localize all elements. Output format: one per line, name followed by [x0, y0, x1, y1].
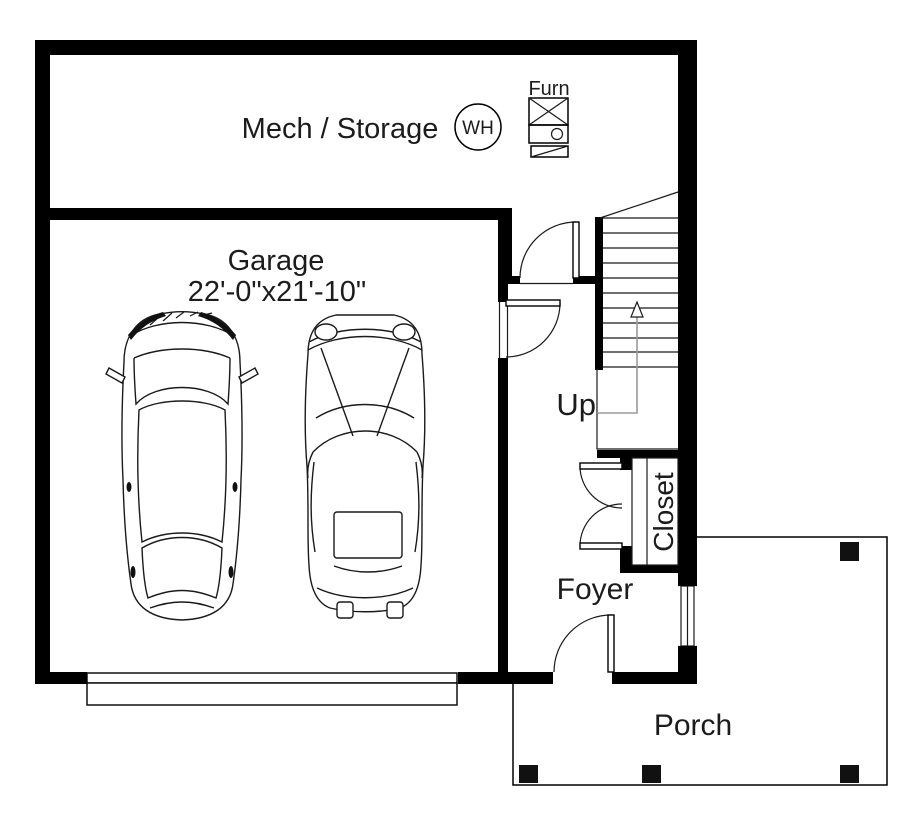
car-right-exhaust	[337, 602, 353, 618]
hall-top-door-swing	[520, 222, 576, 278]
garage-hall-door-swing	[506, 303, 560, 357]
car-left-handle	[127, 482, 132, 492]
car-right-body	[305, 315, 425, 612]
room-label-foyer: Foyer	[557, 573, 634, 606]
car-right-headlight	[315, 324, 337, 340]
car-left	[106, 312, 258, 620]
hall-wall-stub-left	[498, 276, 520, 284]
exterior-wall-top	[35, 40, 697, 55]
porch-post	[840, 542, 859, 561]
room-label-closet: Closet	[648, 472, 679, 552]
garage-door-jamb-lines	[500, 302, 508, 358]
entry-door-swing	[554, 615, 611, 672]
water-heater-label: WH	[462, 118, 494, 139]
furnace-symbol: Furn	[528, 78, 569, 157]
foyer-bottom-wall-right	[612, 672, 697, 684]
water-heater-symbol: WH	[455, 104, 501, 150]
closet-bottom-wall	[620, 565, 697, 573]
exterior-wall-right-upper	[678, 40, 697, 585]
entry-door-leaf	[608, 615, 614, 672]
stair-bottom-wall	[597, 450, 678, 458]
garage-dimension-label: 22'-0"x21'-10"	[188, 276, 366, 308]
furnace-label: Furn	[528, 78, 569, 100]
porch-post	[642, 765, 661, 783]
car-right-headlight	[393, 324, 415, 340]
furnace-box-x	[529, 98, 568, 125]
car-left-handle	[233, 482, 238, 492]
floor-plan-drawing: WH Furn	[0, 0, 905, 820]
car-left-mirror	[239, 368, 258, 383]
hall-top-door-leaf	[573, 222, 579, 278]
foyer-window	[678, 585, 697, 647]
garage-foyer-bottom-wall	[458, 672, 553, 684]
room-label-mech-storage: Mech / Storage	[242, 113, 439, 145]
garage-right-wall-upper	[498, 208, 512, 284]
porch-post	[519, 765, 538, 783]
garage-right-wall-mid	[498, 284, 508, 302]
furnace-damper-line	[531, 146, 568, 157]
closet-door-swing-top	[580, 466, 622, 508]
garage-door-apron	[87, 683, 457, 705]
stairs-up-label: Up	[556, 387, 596, 422]
car-right	[305, 315, 425, 618]
stair-left-wall	[595, 217, 603, 370]
exterior-wall-left	[35, 40, 50, 684]
stair-treads	[603, 218, 678, 367]
car-left-side-mark	[131, 566, 136, 578]
closet-door-leaf-bottom	[580, 543, 622, 549]
mech-garage-wall	[35, 208, 512, 220]
porch-post	[840, 765, 859, 783]
car-left-mirror	[106, 368, 125, 383]
closet-door-swing-bottom	[580, 504, 622, 546]
car-left-side-mark	[229, 566, 234, 578]
stair-break-line	[600, 192, 678, 218]
room-label-garage: Garage	[228, 245, 325, 277]
labels: Mech / Storage Garage 22'-0"x21'-10" Up …	[188, 113, 732, 742]
closet-door-leaf-top	[580, 463, 622, 469]
overhead-garage-door	[87, 673, 457, 683]
car-left-body	[122, 312, 242, 620]
garage-right-wall-lower	[498, 358, 508, 684]
car-right-exhaust	[387, 602, 403, 618]
up-arrow-head	[631, 302, 643, 317]
garage-hall-door-leaf	[506, 300, 560, 306]
room-label-porch: Porch	[654, 709, 732, 742]
floor-plan: WH Furn	[0, 0, 905, 820]
garage-bottom-wall-left	[35, 672, 87, 684]
staircase	[597, 192, 678, 449]
furnace-dial	[552, 129, 563, 140]
